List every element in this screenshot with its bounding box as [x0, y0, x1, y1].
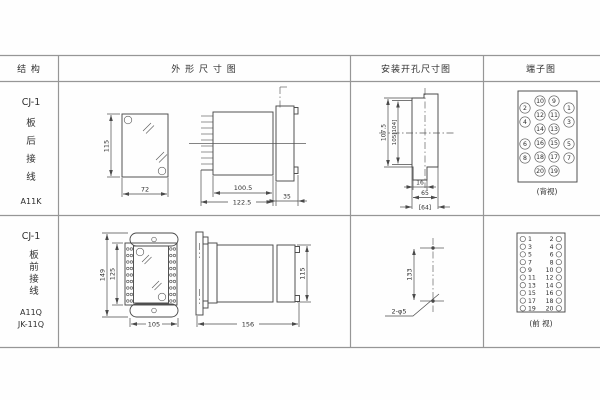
terminal-number: 14: [546, 282, 554, 289]
dim-133-label: 133: [406, 268, 414, 280]
dim-100-5-label: 100.5: [234, 184, 253, 192]
dim-72-label: 72: [141, 186, 149, 194]
terminal-number: 1: [567, 105, 571, 112]
terminal-number: 11: [550, 112, 558, 119]
row1-code: A11K: [21, 197, 43, 206]
row2-terminal-diagram: 1 2 3 4 5 6 7 8 9 10 11 12 13 14 15 16 1…: [517, 233, 565, 328]
terminal-number: 12: [536, 112, 544, 119]
dim-2xphi5-label: 2-φ5: [392, 308, 407, 316]
terminal-number: 11: [528, 275, 536, 282]
dim-156-label: 156: [242, 321, 254, 329]
row2-side-view-drawing: 156 115: [196, 232, 311, 329]
terminal-number: 6: [550, 252, 554, 259]
terminal-number: 20: [536, 168, 544, 175]
dim-115-side-label: 115: [299, 267, 307, 279]
header-structure: 结 构: [17, 63, 41, 75]
terminal-number: 13: [550, 126, 558, 133]
terminal-number: 17: [550, 154, 558, 161]
terminal-number: 8: [523, 155, 527, 162]
terminal-number: 20: [546, 306, 554, 313]
terminal-number: 16: [546, 290, 554, 297]
dim-65-label: 65: [421, 190, 429, 197]
dim-107-5-label: 107.5: [381, 124, 388, 141]
terminal-number: 19: [528, 306, 536, 313]
terminal-number: 10: [536, 98, 544, 105]
terminal-number: 7: [528, 259, 532, 266]
terminal-number: 15: [528, 290, 536, 297]
terminal-number: 14: [536, 126, 544, 133]
terminal-number: 13: [528, 282, 536, 289]
header-outline-dims: 外 形 尺 寸 图: [171, 63, 236, 75]
terminal-number: 8: [550, 259, 554, 266]
drawing-canvas: 结 构 外 形 尺 寸 图 安装开孔尺寸图 端子图 CJ-1 板 后 接 线 A…: [0, 0, 600, 400]
row1-wiring-char: 接: [26, 153, 36, 165]
terminal-number: 3: [528, 244, 532, 251]
terminal-number: 2: [550, 236, 554, 243]
row1-wiring-char: 线: [26, 171, 36, 183]
row1-view-label: (背视): [537, 186, 558, 196]
dim-122-5-label: 122.5: [233, 199, 252, 207]
terminal-number: 7: [567, 155, 571, 162]
row2-wiring-char: 板: [29, 249, 39, 261]
row2-drilling-drawing: 133 2-φ5: [385, 238, 444, 316]
row2-view-label: (前 视): [529, 318, 552, 328]
table-header: 结 构 外 形 尺 寸 图 安装开孔尺寸图 端子图: [17, 63, 556, 75]
terminal-number: 12: [546, 275, 554, 282]
table-grid: [0, 56, 600, 348]
terminal-number: 9: [528, 267, 532, 274]
terminal-number: 19: [550, 168, 558, 175]
dim-64-label: [64]: [419, 205, 431, 212]
row2-code: A11Q: [20, 308, 42, 317]
row1-side-view-drawing: 100.5 122.5 35: [189, 87, 307, 207]
row2-wiring-char: 前: [29, 261, 39, 273]
row1-structure-label: CJ-1 板 后 接 线 A11K: [21, 97, 43, 206]
header-mounting-holes: 安装开孔尺寸图: [381, 63, 451, 75]
terminal-number: 5: [567, 141, 571, 148]
dim-105-104-label: 105[104]: [392, 120, 398, 146]
row2-wiring-char: 线: [29, 285, 39, 297]
dim-149-label: 149: [99, 269, 107, 281]
row2-model: CJ-1: [22, 231, 41, 242]
terminal-number: 10: [546, 267, 554, 274]
terminal-number: 4: [550, 244, 554, 251]
row2-wiring-char: 接: [29, 273, 39, 285]
row1-cutout-drawing: 107.5 105[104] 16 65 [64]: [379, 88, 455, 212]
relay-dimension-datasheet: 结 构 外 形 尺 寸 图 安装开孔尺寸图 端子图 CJ-1 板 后 接 线 A…: [0, 0, 600, 400]
terminal-number: 15: [550, 140, 558, 147]
row1-terminal-diagram: 2 10 9 1 4 12 11 3 14 13 6 16 15 5 8 18 …: [518, 91, 577, 196]
terminal-number: 2: [523, 105, 527, 112]
row1-wiring-char: 板: [26, 117, 36, 129]
dim-125-label: 125: [109, 268, 117, 280]
terminal-number: 1: [528, 236, 532, 243]
row1-front-view-drawing: 115 72: [103, 114, 169, 197]
terminal-number: 9: [552, 98, 556, 105]
terminal-number: 6: [523, 141, 527, 148]
row2-front-view-drawing: 149 125 105: [99, 233, 179, 329]
dim-16-label: 16: [416, 180, 424, 187]
terminal-number: 3: [567, 119, 571, 126]
row2-structure-label: CJ-1 板 前 接 线 A11Q JK-11Q: [17, 231, 44, 329]
terminal-number: 17: [528, 298, 536, 305]
row1-model: CJ-1: [22, 97, 41, 108]
terminal-number: 16: [536, 140, 544, 147]
dim-35-label: 35: [283, 194, 291, 201]
terminal-number: 4: [523, 119, 527, 126]
terminal-number: 18: [536, 154, 544, 161]
terminal-number: 5: [528, 252, 532, 259]
row2-code: JK-11Q: [17, 320, 44, 329]
row1-wiring-char: 后: [26, 136, 36, 147]
dim-105-label: 105: [148, 321, 160, 329]
dim-115-label: 115: [103, 140, 111, 152]
header-terminal-diagram: 端子图: [526, 63, 556, 75]
terminal-number: 18: [546, 298, 554, 305]
